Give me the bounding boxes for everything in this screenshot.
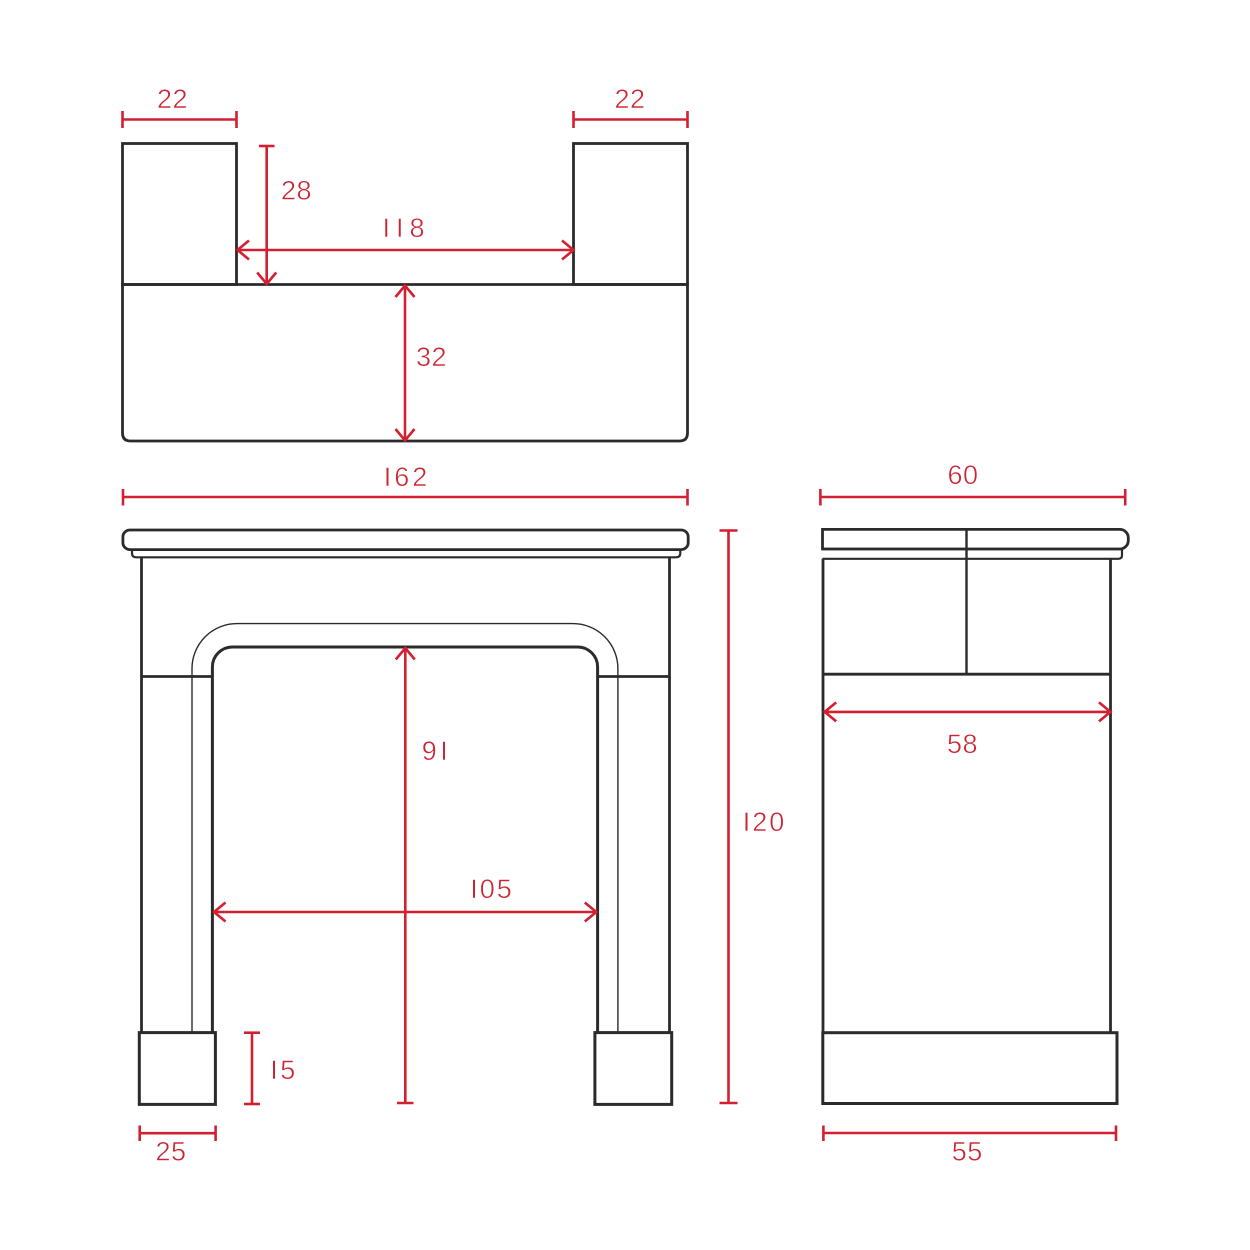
svg-text:22: 22 [157,84,188,114]
svg-text:II8: II8 [382,213,430,243]
svg-text:I5: I5 [270,1055,298,1085]
svg-text:22: 22 [614,84,645,114]
svg-text:28: 28 [281,176,312,206]
svg-text:I20: I20 [743,807,787,837]
svg-text:I05: I05 [470,874,514,904]
svg-text:I62: I62 [384,462,431,492]
svg-text:32: 32 [416,342,447,372]
svg-text:25: 25 [155,1137,186,1167]
svg-text:55: 55 [952,1137,983,1167]
svg-text:58: 58 [947,729,978,759]
svg-text:9I: 9I [422,736,452,766]
svg-text:60: 60 [947,460,978,490]
